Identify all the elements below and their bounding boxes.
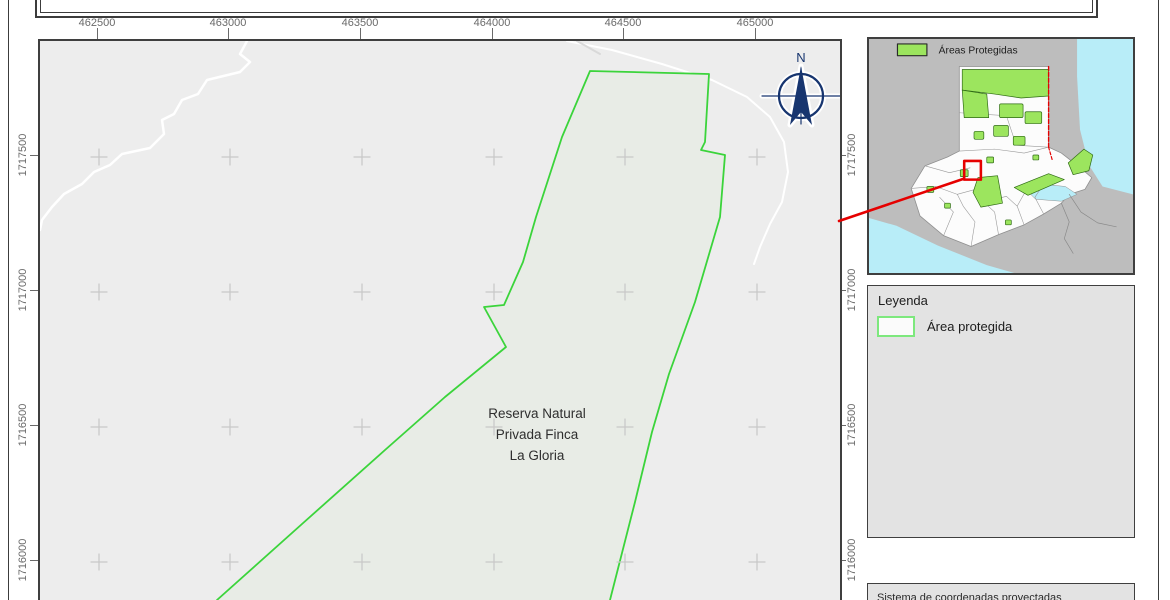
protected-area-swatch bbox=[877, 316, 915, 337]
x-tick-mark bbox=[755, 28, 756, 39]
y-tick-label: 1717500 bbox=[15, 123, 31, 187]
svg-text-label: Áreas Protegidas bbox=[939, 44, 1018, 57]
map-shape bbox=[962, 90, 988, 118]
map-shape bbox=[1025, 112, 1042, 124]
crs-info-box: Sistema de coordenadas proyectadas bbox=[867, 583, 1135, 600]
x-tick-mark bbox=[360, 28, 361, 39]
svg-text-label: N bbox=[796, 50, 805, 65]
legend-box: Leyenda Área protegida bbox=[867, 285, 1135, 538]
map-shape bbox=[945, 203, 951, 208]
y-tick-mark bbox=[30, 425, 38, 426]
protected-area-label: Reserva Natural Privada Finca La Gloria bbox=[437, 404, 637, 467]
map-shape bbox=[1013, 136, 1025, 145]
page-border-left bbox=[8, 0, 9, 600]
map-shape bbox=[897, 44, 926, 56]
map-layout-page: 462500463000463500464000464500465000 171… bbox=[0, 0, 1170, 600]
map-shape bbox=[974, 131, 984, 139]
map-shape bbox=[927, 186, 934, 192]
y-tick-label: 1717000 bbox=[15, 258, 31, 322]
y-tick-mark bbox=[30, 155, 38, 156]
map-shape bbox=[987, 157, 994, 163]
map-shape bbox=[206, 71, 725, 600]
x-tick-mark bbox=[623, 28, 624, 39]
y-tick-label: 1716000 bbox=[844, 528, 860, 592]
x-tick-mark bbox=[97, 28, 98, 39]
crs-info-text: Sistema de coordenadas proyectadas bbox=[877, 592, 1062, 600]
y-tick-label: 1716500 bbox=[15, 393, 31, 457]
page-border-right bbox=[1158, 0, 1159, 600]
map-shape bbox=[1000, 104, 1024, 118]
x-tick-mark bbox=[492, 28, 493, 39]
main-map-drawing: N bbox=[40, 41, 840, 600]
y-tick-mark bbox=[30, 560, 38, 561]
map-shape bbox=[1033, 155, 1039, 160]
legend-title: Leyenda bbox=[878, 293, 928, 308]
title-box-inner-frame bbox=[40, 0, 1093, 13]
inset-map-drawing: Áreas Protegidas bbox=[869, 39, 1133, 273]
y-tick-label: 1717000 bbox=[844, 258, 860, 322]
title-box bbox=[35, 0, 1098, 18]
map-shape bbox=[40, 41, 250, 230]
map-shape bbox=[1005, 220, 1011, 225]
x-tick-mark bbox=[228, 28, 229, 39]
y-tick-label: 1716000 bbox=[15, 528, 31, 592]
map-shape bbox=[994, 126, 1009, 137]
legend-item-protected-area: Área protegida bbox=[877, 316, 1012, 337]
y-tick-label: 1716500 bbox=[844, 393, 860, 457]
inset-locator-map: Áreas Protegidas bbox=[867, 37, 1135, 275]
legend-item-label: Área protegida bbox=[927, 319, 1012, 334]
y-tick-mark bbox=[30, 290, 38, 291]
y-tick-label: 1717500 bbox=[844, 123, 860, 187]
main-map-canvas: N Reserva Natural Privada Finca La Glori… bbox=[38, 39, 842, 600]
